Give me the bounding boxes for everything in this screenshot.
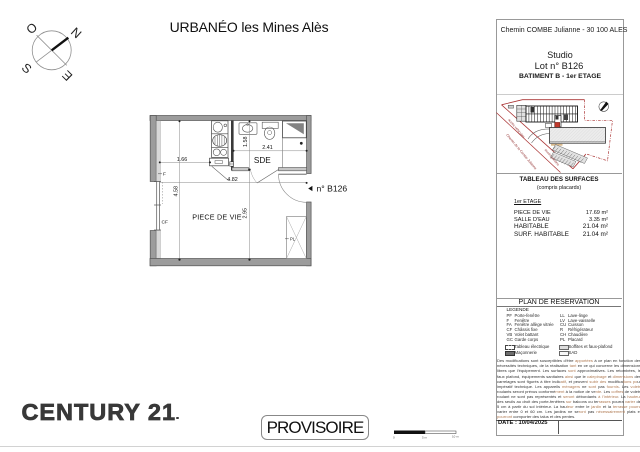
svg-text:5 m: 5 m: [422, 436, 428, 440]
svg-text:PL: PL: [290, 237, 296, 242]
svg-text:10 m: 10 m: [452, 435, 459, 439]
svg-text:2.95: 2.95: [242, 208, 248, 219]
svg-text:Chemin de la Combe Julianne: Chemin de la Combe Julianne: [505, 133, 537, 170]
svg-text:PIECE DE VIE: PIECE DE VIE: [192, 213, 242, 222]
svg-text:CF: CF: [162, 220, 168, 226]
svg-text:2.41: 2.41: [262, 145, 273, 151]
svg-text:F: F: [163, 172, 166, 178]
svg-text:0: 0: [393, 436, 395, 440]
svg-text:1.66: 1.66: [177, 157, 188, 163]
svg-text:1.58: 1.58: [243, 137, 249, 148]
svg-text:S: S: [19, 60, 34, 76]
svg-text:4.58: 4.58: [174, 186, 180, 197]
svg-text:E: E: [60, 68, 76, 84]
svg-text:N: N: [68, 25, 84, 41]
svg-text:n° B126: n° B126: [317, 183, 348, 193]
svg-text:O: O: [24, 20, 41, 37]
svg-text:4.82: 4.82: [227, 177, 238, 183]
svg-text:SDE: SDE: [254, 156, 271, 165]
